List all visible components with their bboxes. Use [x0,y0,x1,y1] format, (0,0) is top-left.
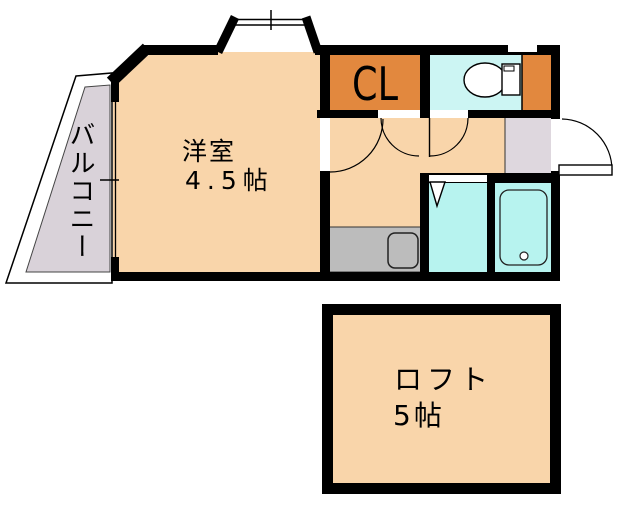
closet-door-opening [378,110,420,118]
hallway-corridor-floor [329,118,506,176]
window-top-opening [508,45,537,52]
bay-window [218,10,318,52]
storage-nook-floor [522,53,551,111]
loft-label: ロフト [394,363,493,396]
wall-bath-divider [487,173,495,272]
wall-bottom [111,272,560,281]
wall-right-lower [551,171,560,272]
wall-mainroom-right-lower [320,171,330,272]
main-room-size-label: 4.5帖 [185,166,274,195]
loft-size-label: 5帖 [393,399,445,432]
hallway-kitchen-floor [329,176,421,228]
toilet-door-opening [430,110,468,118]
mainroom-door-opening [320,118,330,171]
bay-window-right-wall [306,17,318,52]
bathtub-drain [520,252,528,260]
kitchen-counter [329,227,421,272]
closet-label: CL [352,57,398,111]
entry-door-swing [562,119,612,170]
toilet-bowl [464,63,506,97]
wall-mainroom-right-upper [320,45,330,118]
toilet-flush-button [504,66,514,71]
balcony [6,73,112,283]
entry-door-leaf [559,165,612,175]
floorplan-canvas: 洋室 4.5帖 CL バルコニー ロフト 5帖 [0,0,621,505]
wall-top-left [142,45,218,55]
bath-door-opening [429,175,487,182]
entry-genkan-floor [505,118,551,175]
toilet-fixture [464,63,520,97]
wall-hall-bath [420,173,429,272]
balcony-label: バルコニー [65,121,95,261]
floorplan-svg: 洋室 4.5帖 CL バルコニー ロフト 5帖 [0,0,621,505]
bathtub [500,190,547,265]
wall-left-lower [111,257,119,272]
kitchen-sink [388,233,418,268]
wall-left-upper [111,77,119,102]
wall-right-upper [551,45,560,119]
wall-closet-toilet-divider [420,53,430,118]
bay-window-left-wall [218,17,235,52]
main-room-label: 洋室 [182,137,236,166]
